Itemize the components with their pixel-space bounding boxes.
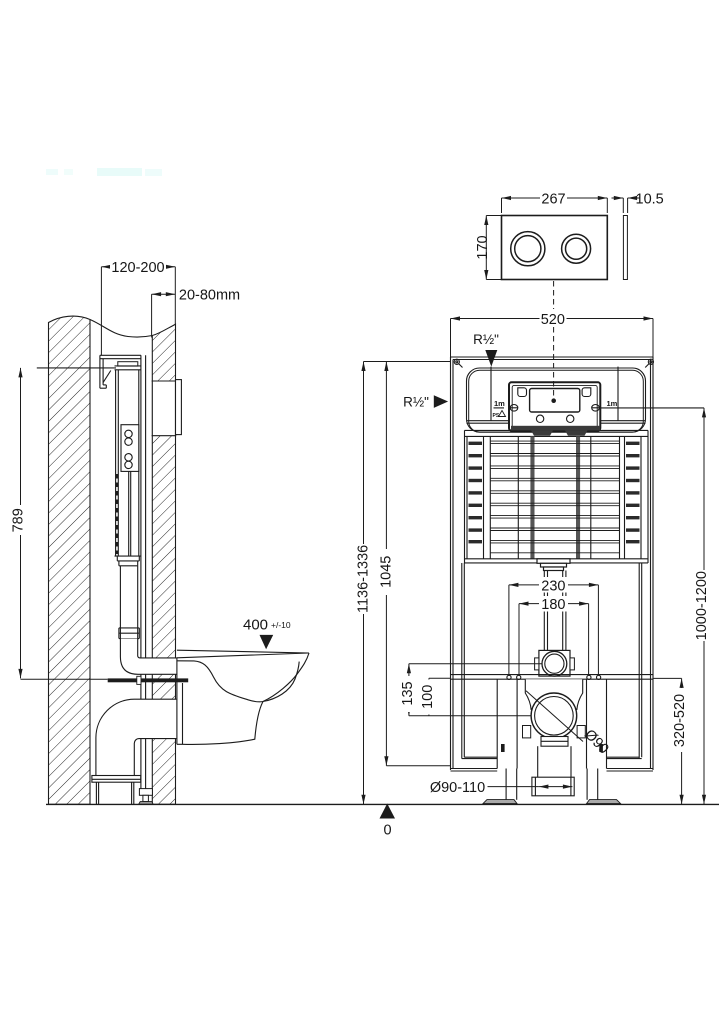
svg-text:170: 170 [475,235,491,259]
svg-text:100: 100 [420,685,436,709]
svg-text:1m: 1m [607,399,618,408]
svg-text:789: 789 [11,508,27,532]
svg-text:1136-1336: 1136-1336 [356,545,372,613]
svg-text:1m: 1m [494,399,505,408]
svg-text:1000-1200: 1000-1200 [694,571,710,640]
svg-text:10.5: 10.5 [636,191,664,207]
svg-text:+/-10: +/-10 [271,620,291,630]
svg-text:135: 135 [400,681,416,705]
svg-text:400: 400 [243,617,268,634]
svg-text:R½": R½" [403,394,429,409]
svg-text:20-80mm: 20-80mm [179,288,240,304]
svg-text:1045: 1045 [378,556,394,588]
svg-text:Ø90-110: Ø90-110 [430,780,485,796]
svg-text:267: 267 [541,192,565,208]
svg-text:180: 180 [541,597,565,613]
svg-text:R½": R½" [473,332,499,347]
svg-text:320-520: 320-520 [672,694,688,747]
svg-text:120-200: 120-200 [111,260,164,276]
svg-text:0: 0 [383,823,391,839]
svg-text:230: 230 [541,578,565,594]
svg-text:520: 520 [541,312,565,328]
